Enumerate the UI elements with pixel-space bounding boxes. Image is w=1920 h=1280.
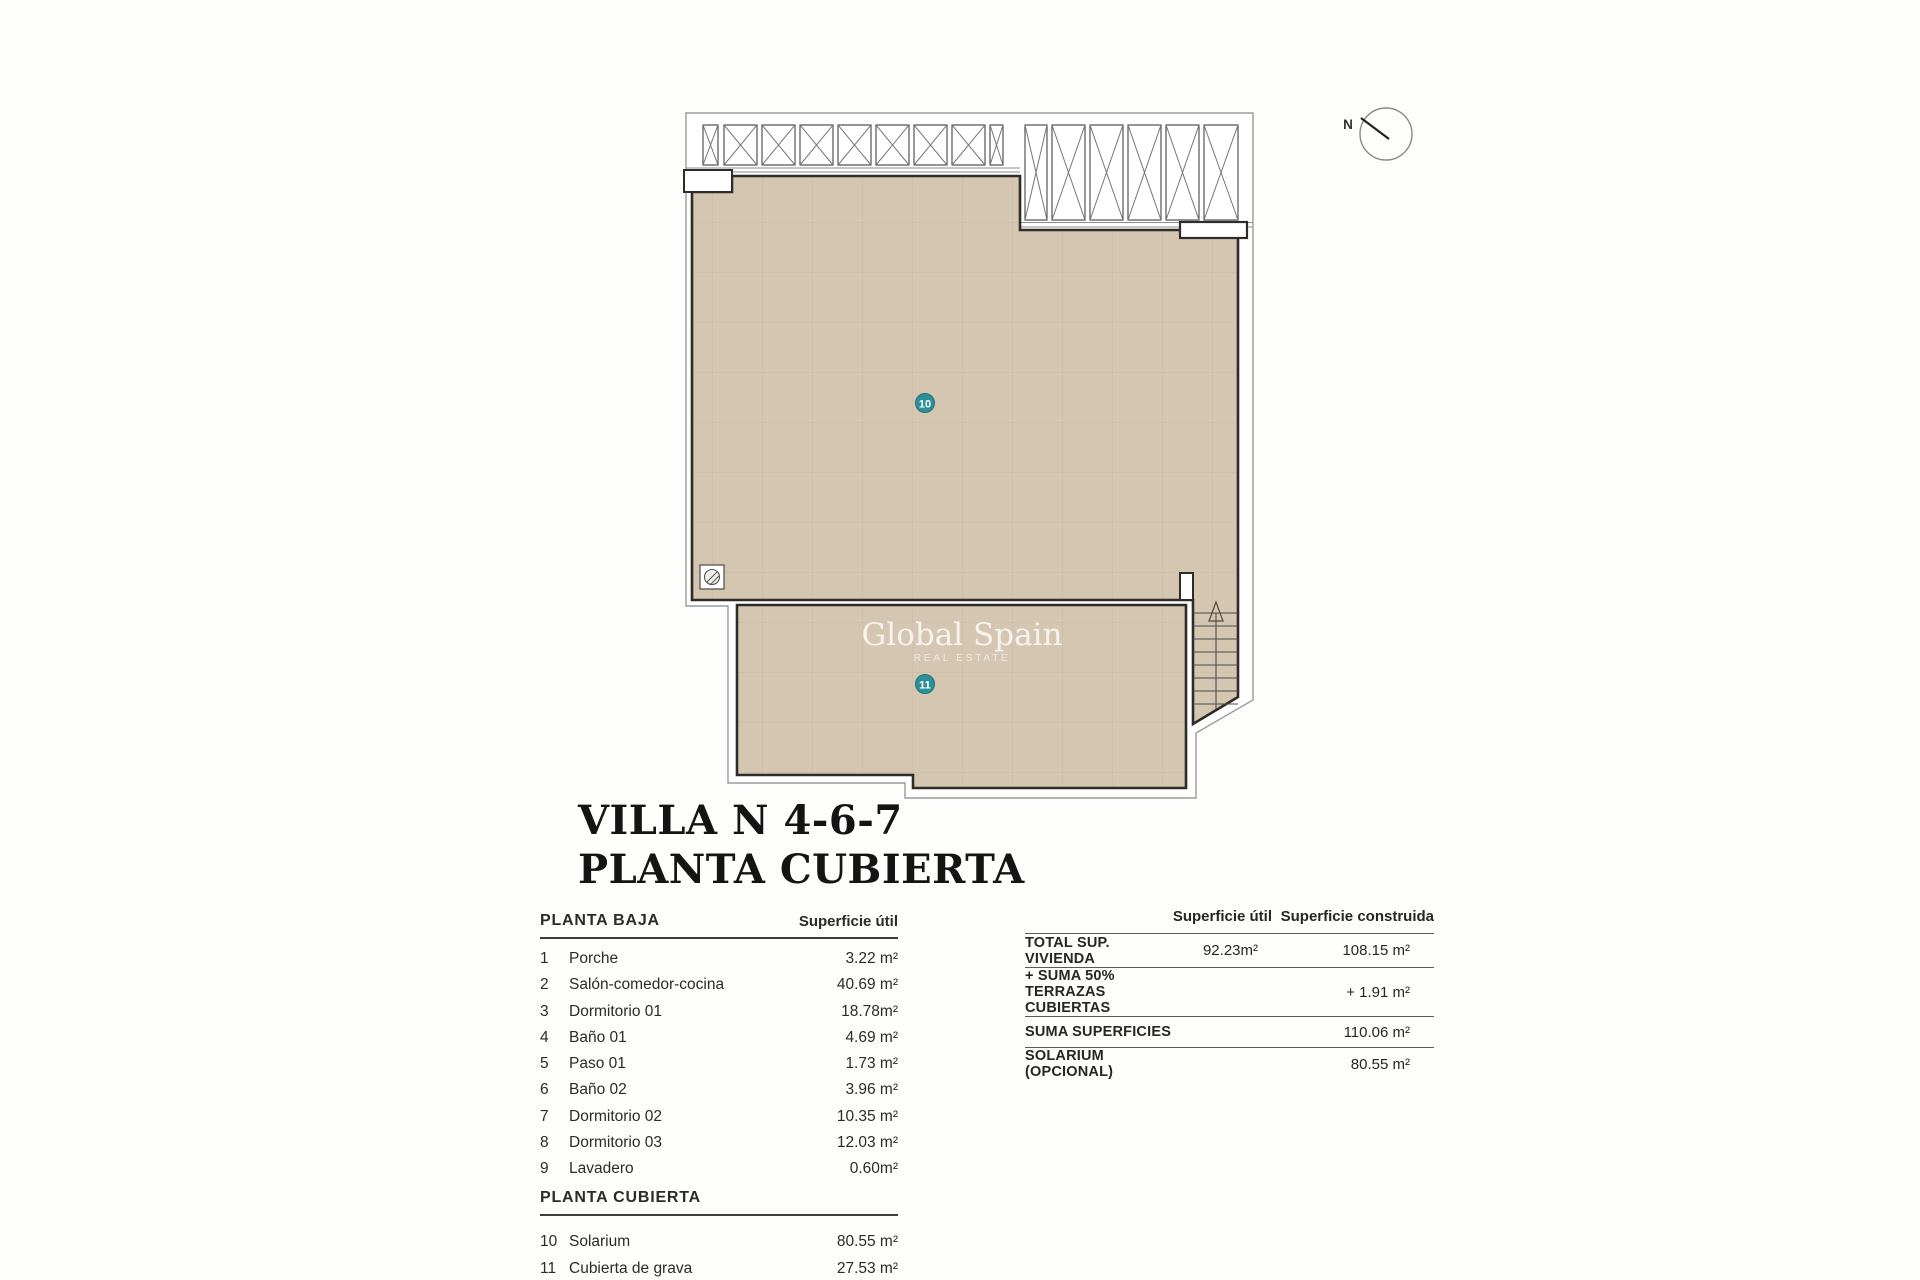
marker-solarium-label: 10 <box>919 399 931 411</box>
marker-solarium: 10 <box>916 394 935 413</box>
section-header-planta-cubierta: PLANTA CUBIERTA <box>540 1189 898 1216</box>
table-row: 9Lavadero0.60m² <box>540 1160 898 1186</box>
table-row: 3Dormitorio 0118.78m² <box>540 1003 898 1029</box>
table-row: 2Salón-comedor-cocina40.69 m² <box>540 976 898 1002</box>
table-row-total-vivienda: TOTAL SUP. VIVIENDA 92.23m² 108.15 m² <box>1025 934 1434 968</box>
watermark-tagline: REAL ESTATE <box>914 652 1011 664</box>
watermark-brand: Global Spain <box>862 617 1063 653</box>
column-header-superficie-construida: Superficie construida <box>1272 908 1434 925</box>
planta-cubierta-rows: 10Solarium80.55 m² 11Cubierta de grava27… <box>540 1233 898 1280</box>
table-row-solarium-opcional: SOLARIUM (OPCIONAL) 80.55 m² <box>1025 1048 1434 1080</box>
column-header-superficie-util: Superficie útil <box>1025 908 1272 925</box>
table-row: 5Paso 011.73 m² <box>540 1055 898 1081</box>
compass-icon: N <box>1343 108 1412 160</box>
table-row-terrazas: + SUMA 50% TERRAZAS CUBIERTAS + 1.91 m² <box>1025 968 1434 1017</box>
compass-north-label: N <box>1343 117 1353 132</box>
table-row: 1Porche3.22 m² <box>540 950 898 976</box>
totals-header: Superficie útil Superficie construida <box>1025 908 1434 934</box>
section-header-planta-baja: PLANTA BAJA Superficie útil <box>540 912 898 939</box>
column-header-superficie-util: Superficie útil <box>799 913 898 930</box>
marker-gravel-roof: 11 <box>916 675 935 694</box>
wall-notch-stairs <box>1180 573 1193 600</box>
floorplan-drawing: 10 11 Global Spain REAL ESTATE N <box>0 0 1920 1280</box>
marker-gravel-roof-label: 11 <box>919 680 931 692</box>
planta-baja-rows: 1Porche3.22 m² 2Salón-comedor-cocina40.6… <box>540 950 898 1187</box>
table-row: 8Dormitorio 0312.03 m² <box>540 1134 898 1160</box>
floorplan-page: 10 11 Global Spain REAL ESTATE N VILLA N… <box>0 0 1920 1280</box>
table-row: 4Baño 014.69 m² <box>540 1029 898 1055</box>
section-title: PLANTA CUBIERTA <box>540 1189 701 1207</box>
pergola-right-group <box>1025 125 1238 220</box>
table-row-suma-superficies: SUMA SUPERFICIES 110.06 m² <box>1025 1017 1434 1048</box>
title-line-villa: VILLA N 4-6-7 <box>578 796 1025 845</box>
corner-block-top-right <box>1180 222 1247 238</box>
page-title: VILLA N 4-6-7 PLANTA CUBIERTA <box>578 796 1025 894</box>
section-title: PLANTA BAJA <box>540 912 660 930</box>
corner-notch-top-left <box>684 170 732 192</box>
pergola-left-group <box>703 125 1003 165</box>
drain-icon <box>700 565 724 589</box>
table-row: 11Cubierta de grava27.53 m² <box>540 1260 898 1280</box>
totals-table: Superficie útil Superficie construida TO… <box>1025 908 1434 1080</box>
table-row: 7Dormitorio 0210.35 m² <box>540 1108 898 1134</box>
title-line-floor: PLANTA CUBIERTA <box>578 845 1025 894</box>
room-areas-table: PLANTA BAJA Superficie útil 1Porche3.22 … <box>540 912 898 1280</box>
table-row: 10Solarium80.55 m² <box>540 1233 898 1261</box>
table-row: 6Baño 023.96 m² <box>540 1081 898 1107</box>
